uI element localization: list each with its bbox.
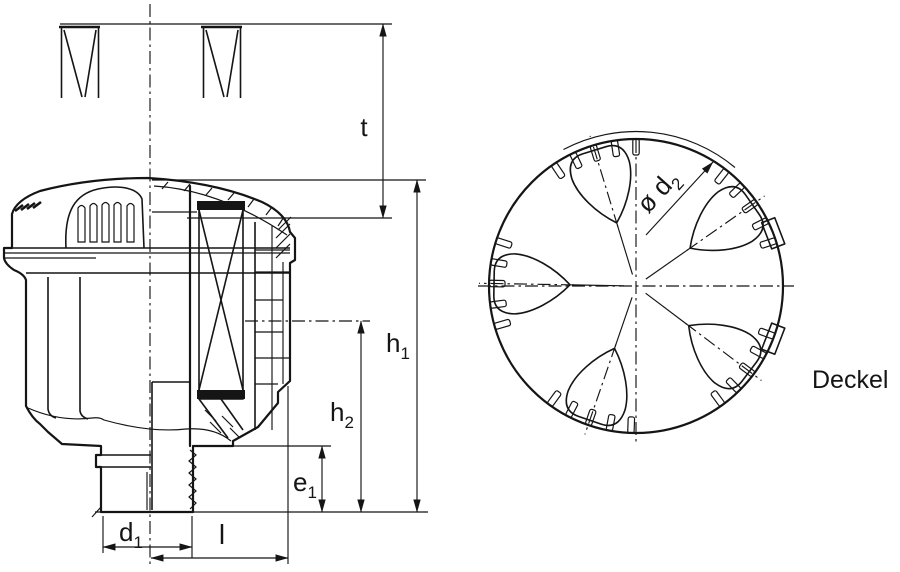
dim-label-t: t [360, 112, 368, 142]
filter-element [197, 201, 245, 399]
dim-label-d2: ø d2 [630, 163, 687, 221]
technical-drawing-canvas: t h1 h2 e1 d1 l ø d2 Deckel [0, 0, 900, 572]
vent-pocket [618, 256, 789, 417]
side-section-view [4, 4, 370, 564]
top-view-deckel: ø d2 Deckel [478, 122, 888, 449]
dim-label-h1: h1 [386, 328, 410, 363]
lid-louver-slots [78, 203, 134, 243]
part-name-deckel: Deckel [812, 366, 888, 394]
bowl-bottom-curve [28, 408, 231, 441]
dim-label-e1: e1 [293, 467, 317, 502]
bottom-cone-section [199, 399, 243, 438]
vent-pocket [541, 282, 675, 449]
dim-label-h2: h2 [330, 397, 354, 432]
filter-housing-drawing: t h1 h2 e1 d1 l ø d2 Deckel [0, 0, 900, 572]
dim-label-l: l [219, 519, 225, 550]
pleat-line [48, 277, 56, 418]
dimension-annotations: t h1 h2 e1 d1 l [60, 24, 428, 564]
pleat-line [80, 277, 88, 419]
dome-inner-wall [154, 186, 287, 235]
outlet-stub [96, 450, 196, 509]
thread-hatch [276, 217, 291, 258]
vent-pocket [478, 237, 625, 332]
dim-label-d1: d1 [119, 517, 143, 552]
